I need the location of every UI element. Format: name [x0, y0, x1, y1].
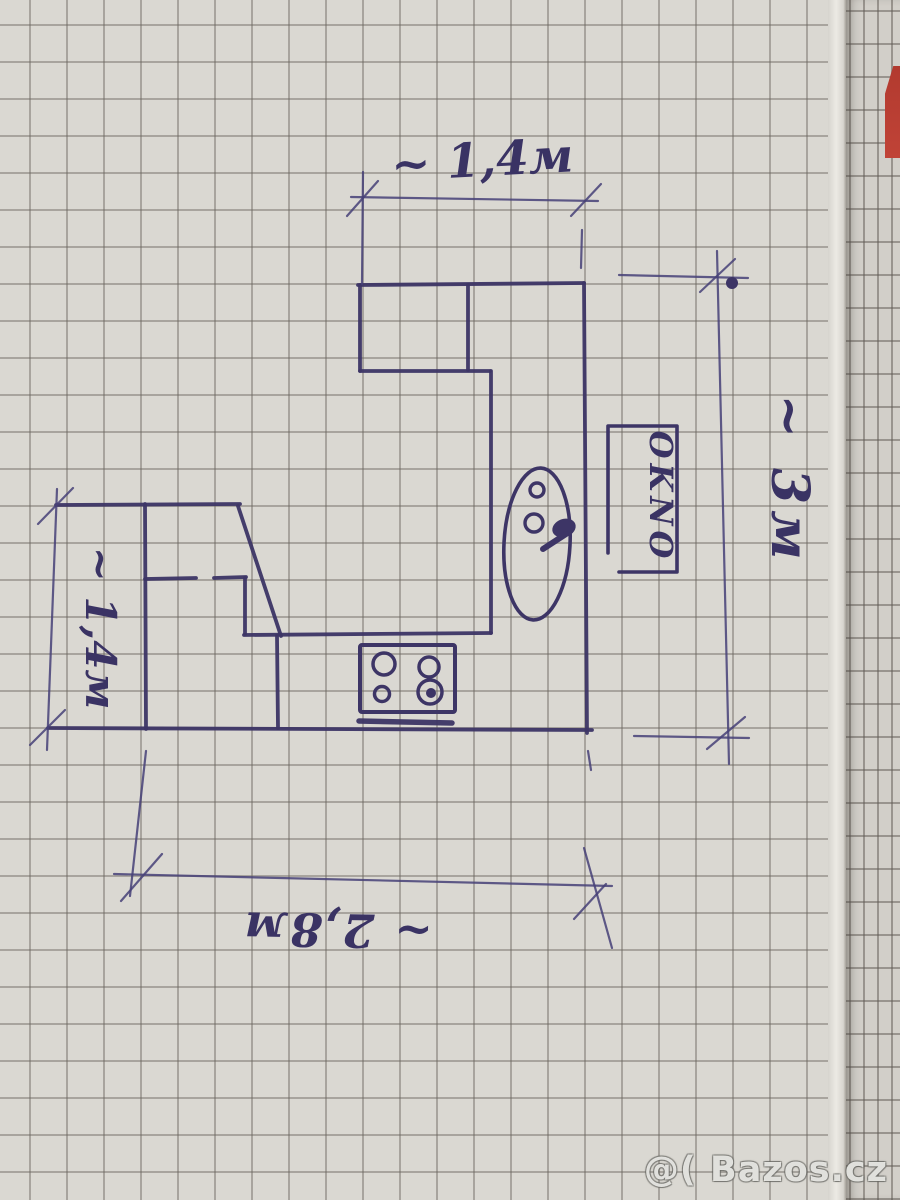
- dimension-lines-group: [30, 172, 749, 948]
- floor-plan-sketch: ~ 1,4м ~ 1,4м ~ 3м ~ 2,8м OKNO: [0, 0, 900, 1200]
- dim-top-label: ~ 1,4м: [390, 128, 575, 192]
- dim-bottom-label: ~ 2,8м: [242, 901, 433, 958]
- bazos-watermark: @( Bazos.cz: [644, 1150, 888, 1190]
- dim-right-label: ~ 3м: [759, 394, 820, 565]
- stove-symbol: [360, 645, 455, 712]
- sink-symbol: [500, 466, 578, 621]
- notebook-photo: ~ 1,4м ~ 1,4м ~ 3м ~ 2,8м OKNO @( Bazos.…: [0, 0, 900, 1200]
- dim-left-label: ~ 1,4м: [76, 547, 125, 710]
- labels-group: ~ 1,4м ~ 1,4м ~ 3м ~ 2,8м OKNO: [76, 128, 820, 958]
- window-label: OKNO: [642, 431, 680, 564]
